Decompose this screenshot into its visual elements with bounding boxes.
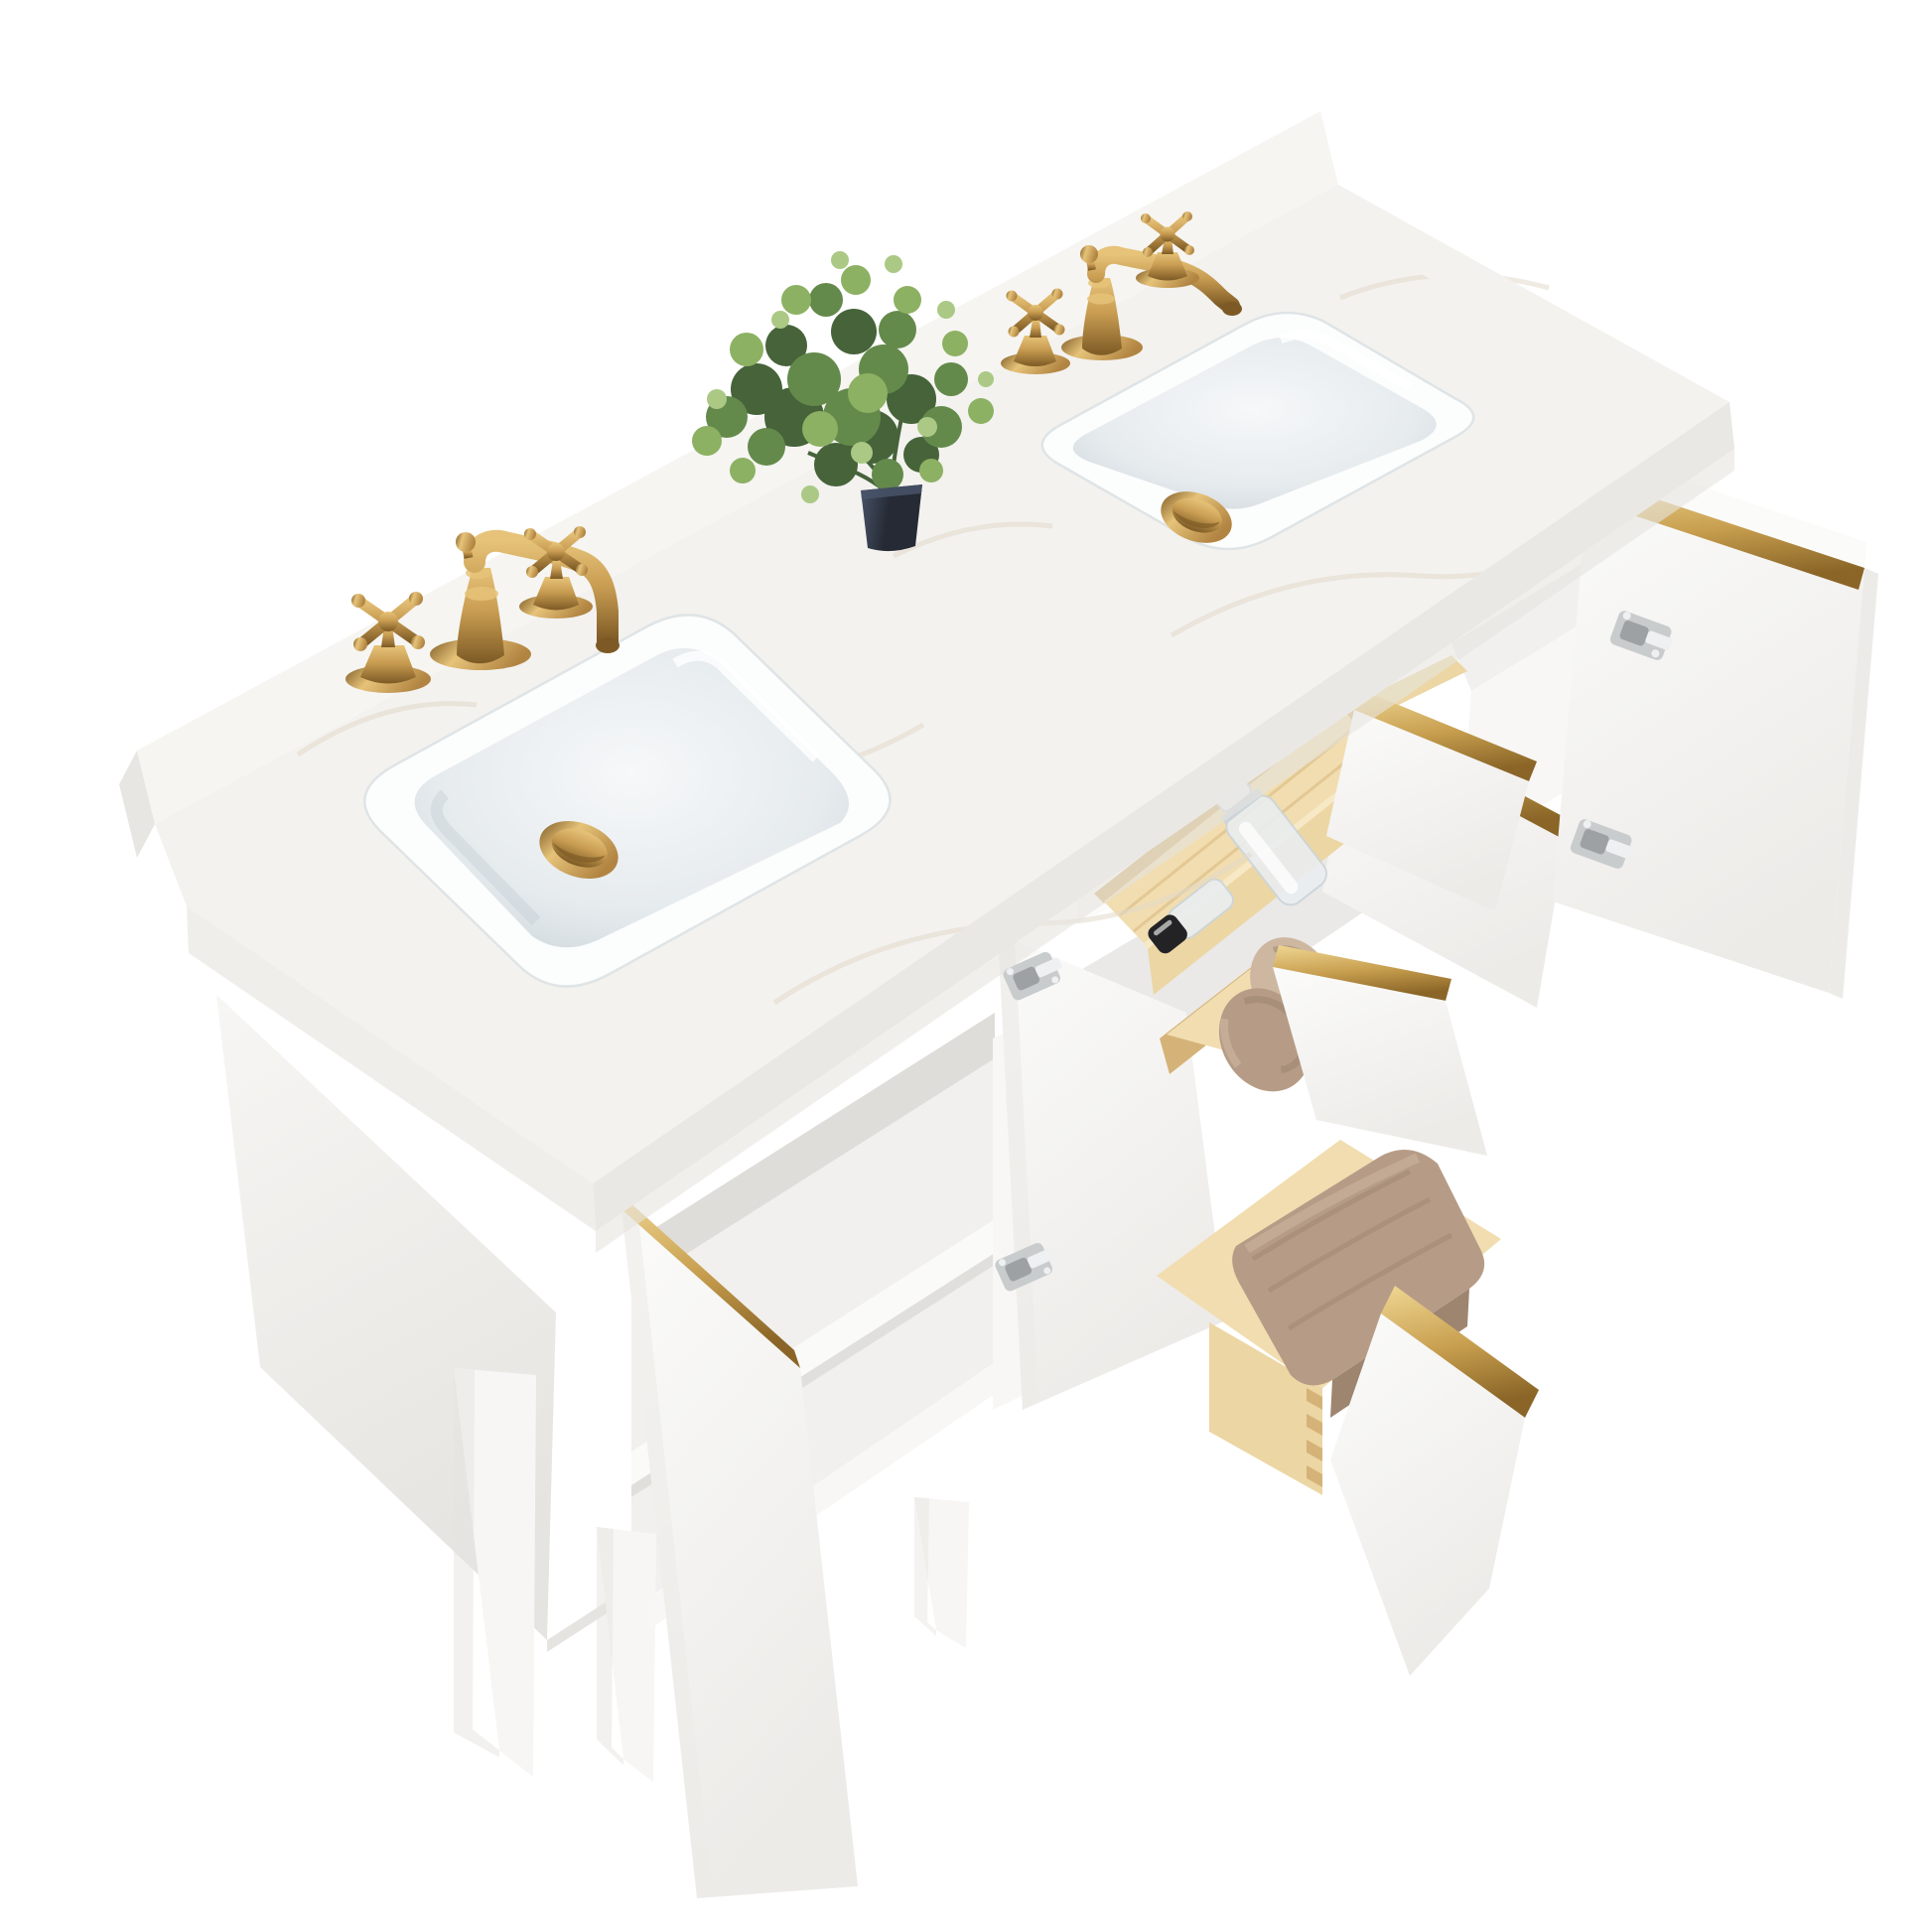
foliage-blob xyxy=(934,362,968,396)
cross-knob xyxy=(1184,245,1194,255)
foliage-blob xyxy=(801,485,819,503)
foliage-blob xyxy=(894,286,921,314)
spout-tip xyxy=(1222,302,1242,316)
foliage-blob xyxy=(730,458,756,483)
cross-knob xyxy=(1141,213,1151,223)
foliage-blob xyxy=(942,331,968,356)
cross-knob xyxy=(574,526,586,538)
foliage-blob xyxy=(831,251,849,269)
cross-knob xyxy=(1052,289,1063,300)
vanity-product-photo xyxy=(0,0,1932,1932)
cross-knob xyxy=(526,566,538,578)
cross-knob xyxy=(1143,247,1153,257)
foliage-blob xyxy=(885,255,902,273)
drawer2-front xyxy=(1273,967,1487,1156)
foliage-blob xyxy=(771,311,789,329)
cross-knob xyxy=(1009,327,1020,338)
foliage-blob xyxy=(831,309,877,354)
spout-finial xyxy=(1080,245,1098,263)
spout-tip xyxy=(596,637,620,653)
cross-knob xyxy=(351,594,365,608)
cross-knob xyxy=(411,635,425,649)
foliage-blob xyxy=(748,428,785,466)
foliage-blob xyxy=(851,442,873,464)
foliage-blob xyxy=(730,333,763,366)
foliage-blob xyxy=(692,426,722,456)
foliage-blob xyxy=(879,311,916,348)
cross-hub xyxy=(1161,227,1175,242)
foliage-blob xyxy=(872,459,903,490)
foliage-blob xyxy=(841,265,871,295)
foliage-blob xyxy=(848,373,888,413)
spout-ring xyxy=(465,587,498,601)
cross-knob xyxy=(1182,211,1192,221)
foliage-blob xyxy=(968,398,994,424)
foliage-blob xyxy=(919,459,943,483)
foliage-blob xyxy=(707,389,727,409)
foliage-blob xyxy=(978,371,994,387)
cross-hub xyxy=(1028,305,1043,321)
cross-knob xyxy=(524,528,536,540)
foliage-blob xyxy=(809,283,843,317)
spout-finial xyxy=(456,532,476,552)
cross-knob xyxy=(409,592,423,606)
foliage-blob xyxy=(937,301,955,319)
spout-ring xyxy=(1087,294,1115,305)
cross-knob xyxy=(353,637,367,651)
bottom-drawer-open xyxy=(1157,1140,1539,1676)
foliage-blob xyxy=(802,411,838,447)
foliage-blob xyxy=(781,285,811,315)
cross-hub xyxy=(547,543,565,561)
cross-hub xyxy=(378,612,398,631)
cross-knob xyxy=(576,564,588,576)
foliage-blob xyxy=(814,443,858,486)
cross-knob xyxy=(1007,291,1018,302)
cross-knob xyxy=(1054,325,1065,336)
foliage-blob xyxy=(917,417,937,437)
